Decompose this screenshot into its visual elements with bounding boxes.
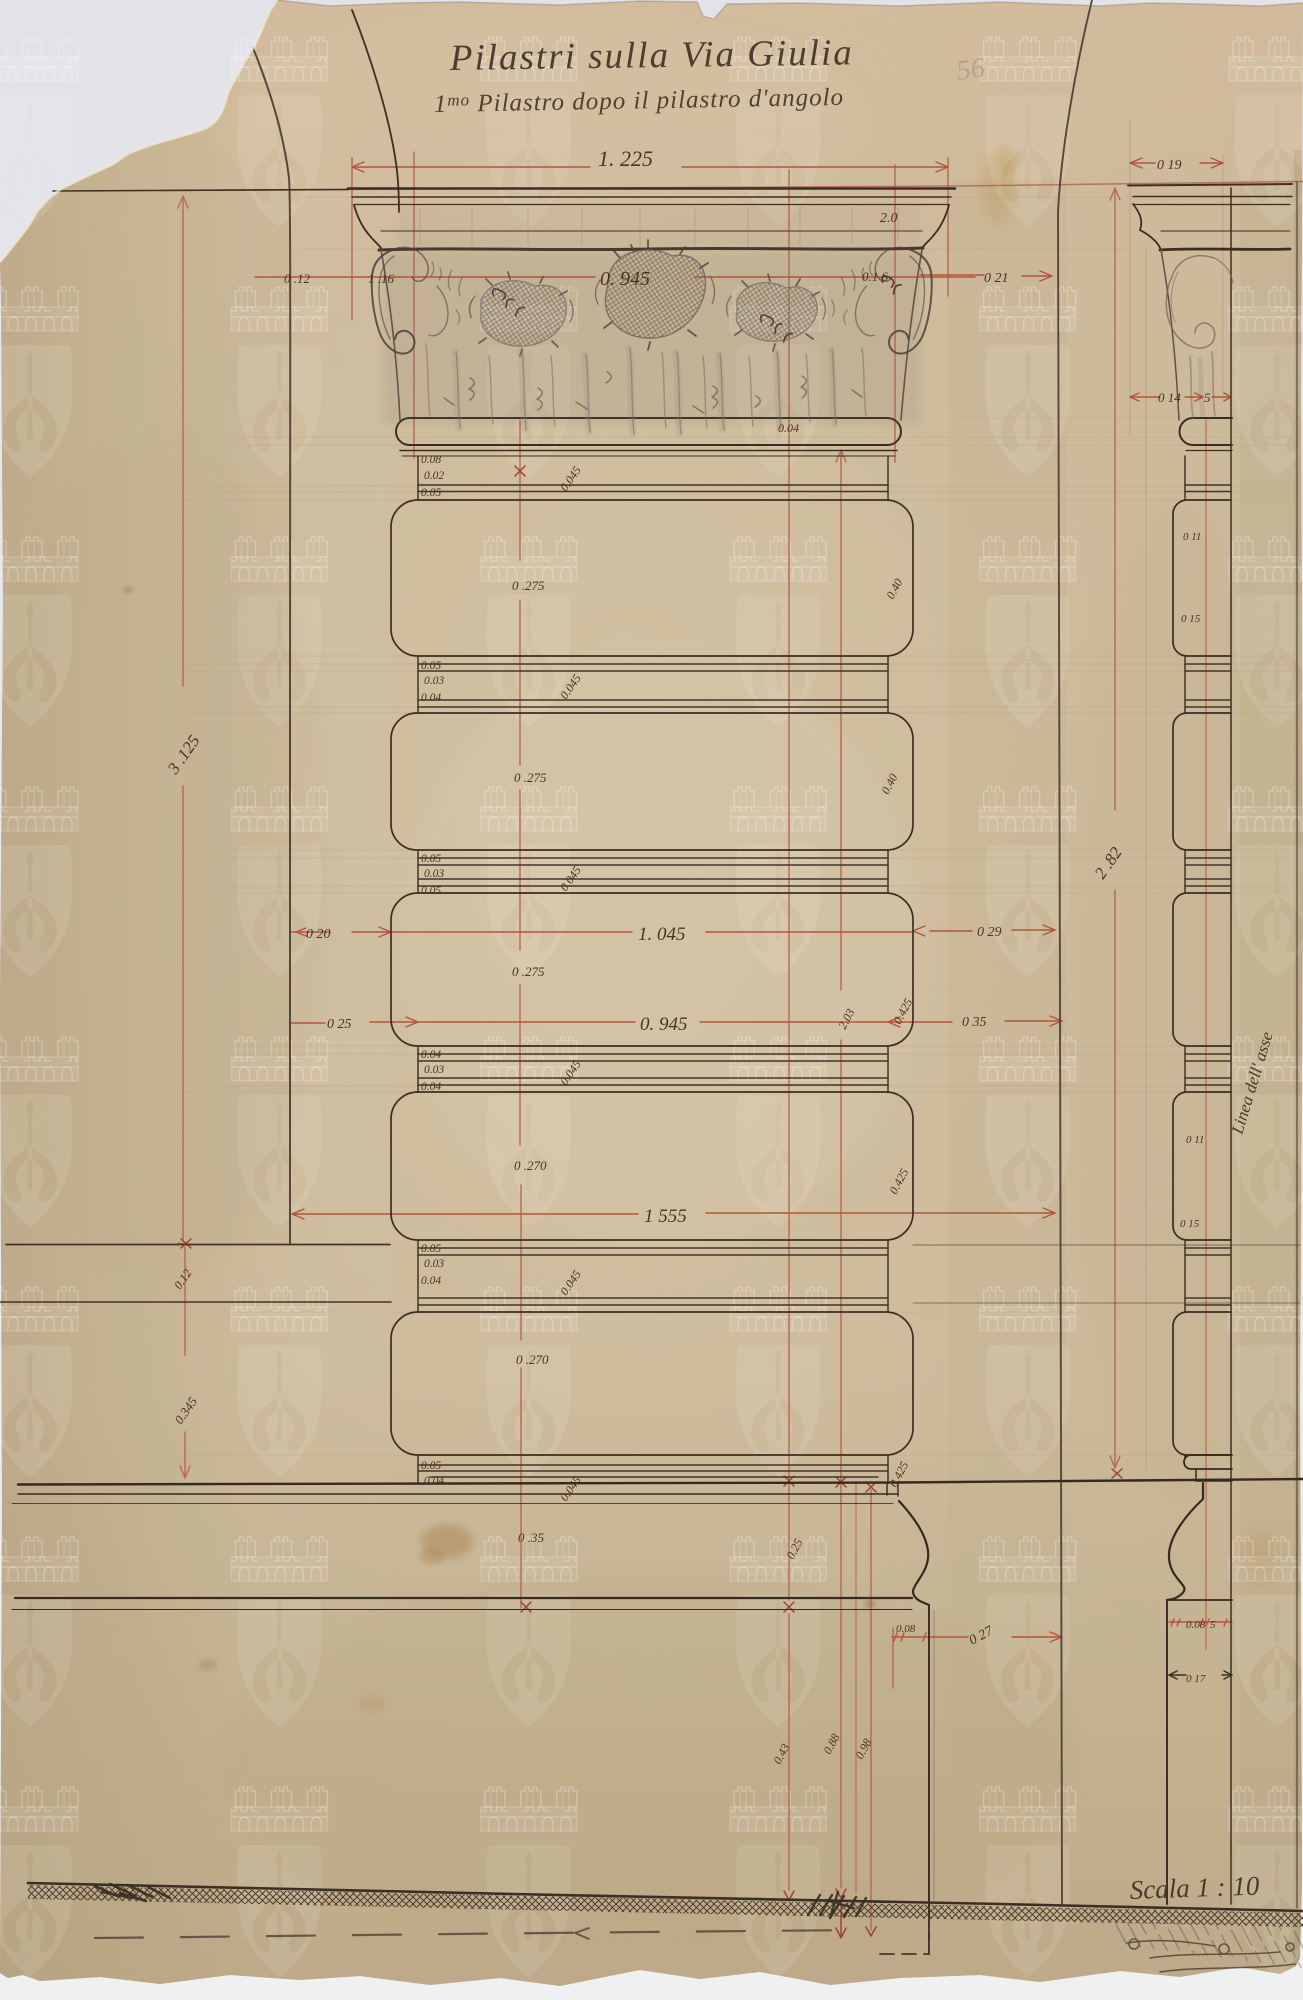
svg-text:Pilastri sulla Via Giulia: Pilastri sulla Via Giulia: [449, 32, 854, 79]
svg-text:1. 225: 1. 225: [598, 146, 653, 171]
svg-text:0.05: 0.05: [421, 1243, 441, 1255]
svg-text:0.03: 0.03: [424, 868, 444, 880]
svg-text:0.08: 0.08: [421, 454, 441, 466]
svg-text:0.04: 0.04: [421, 1275, 441, 1287]
svg-text:0 11: 0 11: [1183, 531, 1201, 543]
svg-text:1 .16: 1 .16: [368, 271, 395, 286]
svg-text:0 .275: 0 .275: [512, 964, 545, 979]
svg-text:0 .275: 0 .275: [514, 770, 547, 785]
svg-text:0.02: 0.02: [424, 470, 444, 482]
svg-text:0.05: 0.05: [421, 1460, 441, 1472]
svg-text:0.03: 0.03: [424, 675, 444, 687]
svg-text:0 15: 0 15: [1180, 1218, 1200, 1230]
svg-text:5: 5: [1204, 390, 1211, 405]
svg-text:0.05: 0.05: [421, 487, 441, 499]
svg-text:0 14: 0 14: [1158, 390, 1181, 405]
svg-text:0 25: 0 25: [327, 1017, 352, 1032]
svg-text:0.08: 0.08: [896, 1623, 916, 1635]
svg-text:0 .275: 0 .275: [512, 578, 545, 593]
svg-text:0.04: 0.04: [421, 1049, 441, 1061]
svg-text:0.05: 0.05: [421, 885, 441, 897]
svg-text:0.05: 0.05: [421, 853, 441, 865]
svg-text:Scala 1 : 10: Scala 1 : 10: [1129, 1870, 1260, 1905]
svg-text:0 15: 0 15: [1181, 613, 1201, 625]
svg-text:0 .270: 0 .270: [516, 1352, 549, 1367]
svg-text:0 .12: 0 .12: [284, 271, 311, 286]
svg-text:0 29: 0 29: [977, 925, 1002, 940]
svg-text:1 555: 1 555: [644, 1206, 687, 1227]
svg-text:0.1 6: 0.1 6: [862, 269, 889, 284]
svg-text:0. 945: 0. 945: [600, 268, 650, 290]
svg-text:0.03: 0.03: [424, 1258, 444, 1270]
svg-text:0.04: 0.04: [424, 1475, 444, 1487]
svg-text:0 .270: 0 .270: [514, 1158, 547, 1173]
svg-text:2.0: 2.0: [880, 211, 898, 226]
svg-text:56: 56: [955, 52, 987, 87]
svg-text:0 17: 0 17: [1186, 1673, 1206, 1685]
svg-text:0 .35: 0 .35: [518, 1530, 545, 1545]
svg-text:5: 5: [1210, 1619, 1216, 1631]
svg-text:0.05: 0.05: [421, 660, 441, 672]
svg-text:0 20: 0 20: [306, 927, 331, 942]
svg-text:0.03: 0.03: [424, 1064, 444, 1076]
svg-text:0 11: 0 11: [1186, 1134, 1204, 1146]
svg-text:0.04: 0.04: [421, 1081, 441, 1093]
svg-text:0.04: 0.04: [421, 692, 441, 704]
svg-text:0 19: 0 19: [1157, 158, 1182, 173]
svg-text:0. 945: 0. 945: [640, 1014, 688, 1035]
svg-text:0.08: 0.08: [1186, 1619, 1206, 1631]
svg-text:0 21: 0 21: [984, 271, 1009, 286]
svg-text:0 35: 0 35: [962, 1015, 987, 1030]
svg-text:0.04: 0.04: [778, 421, 799, 435]
svg-text:1. 045: 1. 045: [638, 924, 686, 945]
